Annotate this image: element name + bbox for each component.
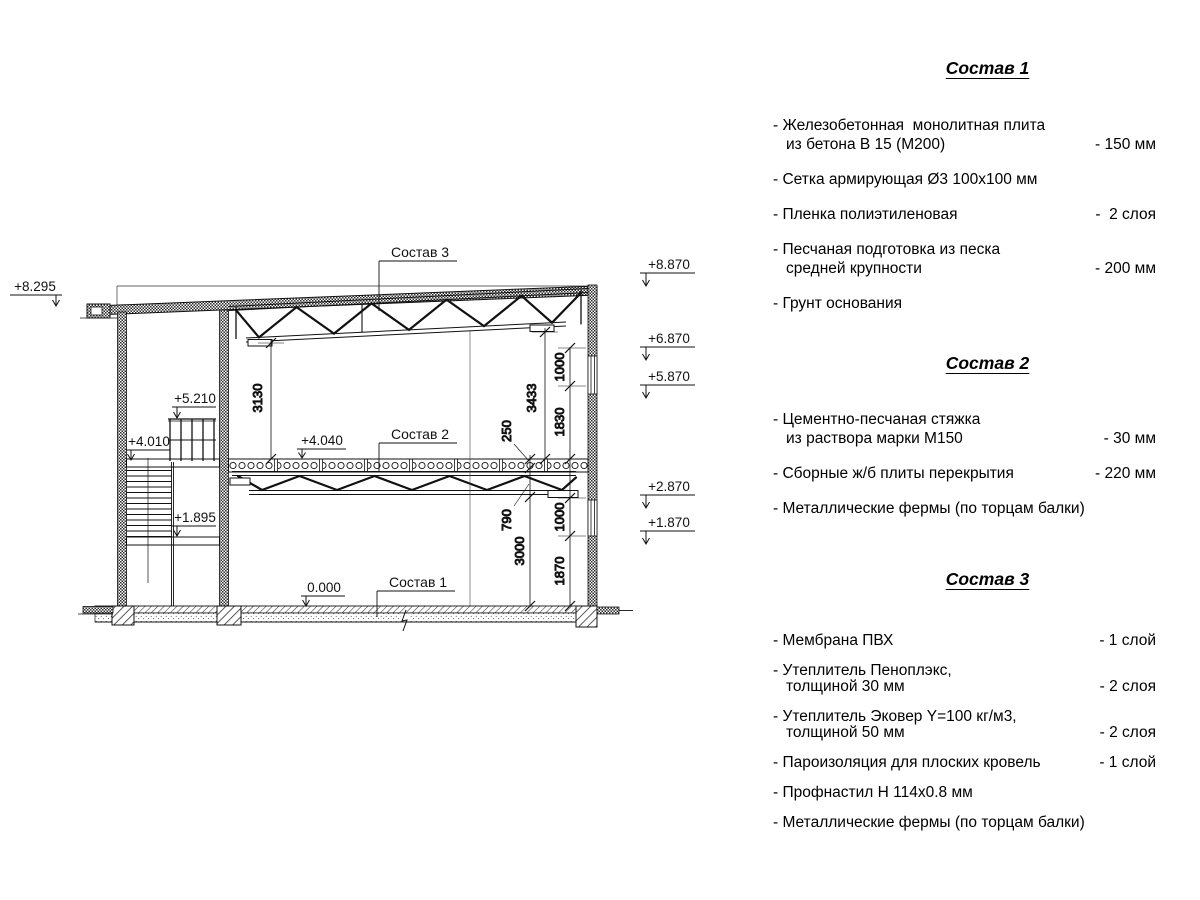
spec-item: - Сборные ж/б плиты перекрытия- 220 мм: [773, 464, 1158, 483]
elevation-text: +5.870: [648, 369, 690, 384]
dimension-chain-right: 1000 1830 1000 1870: [552, 343, 586, 611]
spec-item-text: - Металлические фермы (по торцам балки): [773, 499, 1103, 518]
floor-truss-left-bearing: [230, 478, 250, 485]
elevation-text: +8.295: [14, 279, 56, 294]
spec-item-text: средней крупности: [773, 259, 1116, 278]
dim-1000-lower: 1000: [552, 503, 567, 532]
roof-slab: [80, 286, 597, 318]
spec-item-text: - Цементно-песчаная стяжка: [773, 410, 1103, 429]
spec-item-text: - Профнастил Н 114х0.8 мм: [773, 785, 1103, 801]
elevation-mark-4010: +4.010: [126, 434, 170, 460]
spec-items: - Цементно-песчаная стяжкаиз раствора ма…: [773, 410, 1158, 518]
spec-item: - Железобетонная монолитная плитаиз бето…: [773, 116, 1158, 154]
elevation-text: +8.870: [648, 257, 690, 272]
elevation-text: +1.895: [174, 510, 216, 525]
landing-upper: [127, 459, 220, 467]
spec-item-value: - 200 мм: [1095, 259, 1156, 278]
spec-item-text: из бетона В 15 (М200): [773, 135, 1116, 154]
left-wall: [118, 312, 127, 607]
dim-1000-upper: 1000: [552, 353, 567, 382]
drawing-sheet: 1000 1830 1000 1870 250 790 3000 3130: [0, 0, 1200, 900]
spec-item: - Металлические фермы (по торцам балки): [773, 499, 1158, 518]
spec-item-text: - Пароизоляция для плоских кровель: [773, 755, 1103, 771]
elevation-mark-6870: +6.870: [640, 331, 695, 360]
spec-item-text: - Сетка армирующая Ø3 100х100 мм: [773, 170, 1103, 189]
spec-item: - Грунт основания: [773, 294, 1158, 313]
foundation-left: [112, 606, 134, 625]
sand-bed: [95, 613, 597, 622]
spec-item-text: - Пленка полиэтиленовая: [773, 205, 1103, 224]
spec-item-value: - 2 слоя: [1095, 205, 1156, 224]
elevation-text: +1.870: [648, 515, 690, 530]
callout-text: Состав 3: [391, 244, 449, 260]
spec-item-text: - Утеплитель Эковер Y=100 кг/м3,: [773, 709, 1103, 725]
spec-section-1: Состав 1 - Железобетонная монолитная пли…: [773, 60, 1158, 313]
inner-wall: [220, 310, 229, 607]
spec-item-text: - Мембрана ПВХ: [773, 633, 1103, 649]
spec-item-value: - 1 слой: [1099, 633, 1156, 649]
dim-3130: 3130: [250, 384, 265, 413]
railing: [168, 419, 216, 461]
spec-item-value: - 150 мм: [1095, 135, 1156, 154]
elevation-text: +4.040: [301, 433, 343, 448]
foundation-right: [576, 606, 597, 627]
spec-item-text: толщиной 30 мм: [773, 679, 1116, 695]
callout-text: Состав 2: [391, 426, 449, 442]
stair-treads: [127, 471, 173, 537]
dim-790: 790: [499, 509, 514, 531]
floor-slab-on-grade: [95, 606, 597, 613]
elevation-text: +6.870: [648, 331, 690, 346]
dim-250: 250: [499, 420, 514, 442]
elevation-text: 0.000: [307, 580, 341, 595]
spec-item: - Пленка полиэтиленовая- 2 слоя: [773, 205, 1158, 224]
ground-floor: [78, 606, 633, 631]
landing-lower: [127, 537, 220, 545]
window-lower: [588, 500, 597, 536]
dimension-3130: 3130: [250, 338, 284, 464]
spec-items: - Железобетонная монолитная плитаиз бето…: [773, 116, 1158, 313]
elevation-text: +5.210: [174, 391, 216, 406]
dim-1870: 1870: [552, 557, 567, 586]
foundation-inner: [217, 606, 241, 625]
roof-truss-right-bearing: [530, 325, 554, 332]
elevation-mark-1870: +1.870: [640, 515, 695, 544]
spec-item: - Пароизоляция для плоских кровель- 1 сл…: [773, 755, 1158, 771]
dim-3433: 3433: [524, 384, 539, 413]
elevation-mark-1895: +1.895: [172, 510, 216, 536]
building-section-drawing: 1000 1830 1000 1870 250 790 3000 3130: [0, 0, 760, 900]
floor-slab: [229, 459, 589, 472]
elevation-mark-8295: +8.295: [10, 279, 62, 306]
dimension-3433: 3433: [524, 327, 558, 464]
dimension-chain-inner: 250 790 3000: [499, 420, 535, 611]
spec-section-title: Состав 3: [773, 571, 1158, 588]
spec-item: - Утеплитель Пеноплэкс,толщиной 30 мм- 2…: [773, 663, 1158, 695]
spec-item: - Утеплитель Эковер Y=100 кг/м3,толщиной…: [773, 709, 1158, 741]
dim-3000: 3000: [512, 537, 527, 566]
spec-item-text: - Сборные ж/б плиты перекрытия: [773, 464, 1103, 483]
ledge-right: [597, 607, 619, 614]
spec-section-title: Состав 2: [773, 355, 1158, 372]
spec-item-text: - Железобетонная монолитная плита: [773, 116, 1103, 135]
dim-1830: 1830: [552, 408, 567, 437]
spec-item-text: толщиной 50 мм: [773, 725, 1116, 741]
spec-item: - Металлические фермы (по торцам балки): [773, 815, 1158, 831]
spec-item-value: - 30 мм: [1104, 429, 1156, 448]
elevation-mark-5870: +5.870: [640, 369, 695, 398]
spec-section-2: Состав 2 - Цементно-песчаная стяжкаиз ра…: [773, 355, 1158, 518]
spec-item-value: - 2 слоя: [1100, 725, 1156, 741]
spec-item-text: - Утеплитель Пеноплэкс,: [773, 663, 1103, 679]
spec-item: - Мембрана ПВХ- 1 слой: [773, 633, 1158, 649]
callout-text: Состав 1: [389, 574, 447, 590]
right-wall: [588, 285, 597, 610]
spec-item-value: - 2 слоя: [1100, 679, 1156, 695]
elevation-text: +4.010: [128, 434, 170, 449]
window-upper: [588, 356, 597, 394]
spec-item-text: из раствора марки М150: [773, 429, 1116, 448]
floor-truss: [230, 472, 578, 498]
spec-section-3: Состав 3 - Мембрана ПВХ- 1 слой- Утеплит…: [773, 571, 1158, 831]
spec-item-value: - 220 мм: [1095, 464, 1156, 483]
elevation-mark-2870: +2.870: [640, 479, 695, 508]
specification-panel: Состав 1 - Железобетонная монолитная пли…: [773, 0, 1158, 845]
spec-section-title: Состав 1: [773, 60, 1158, 77]
elevation-mark-4040: +4.040: [297, 433, 346, 458]
spec-items: - Мембрана ПВХ- 1 слой- Утеплитель Пеноп…: [773, 633, 1158, 831]
elevation-mark-5210: +5.210: [172, 391, 216, 418]
spec-item: - Цементно-песчаная стяжкаиз раствора ма…: [773, 410, 1158, 448]
spec-item-text: - Песчаная подготовка из песка: [773, 240, 1103, 259]
spec-item: - Профнастил Н 114х0.8 мм: [773, 785, 1158, 801]
elevation-mark-8870: +8.870: [640, 257, 695, 286]
elevation-text: +2.870: [648, 479, 690, 494]
spec-item-text: - Грунт основания: [773, 294, 1103, 313]
spec-item: - Песчаная подготовка из пескасредней кр…: [773, 240, 1158, 278]
elevation-mark-0000: 0.000: [301, 580, 345, 606]
spec-item: - Сетка армирующая Ø3 100х100 мм: [773, 170, 1158, 189]
spec-item-value: - 1 слой: [1099, 755, 1156, 771]
spec-item-text: - Металлические фермы (по торцам балки): [773, 815, 1103, 831]
ledge-left: [83, 607, 113, 614]
